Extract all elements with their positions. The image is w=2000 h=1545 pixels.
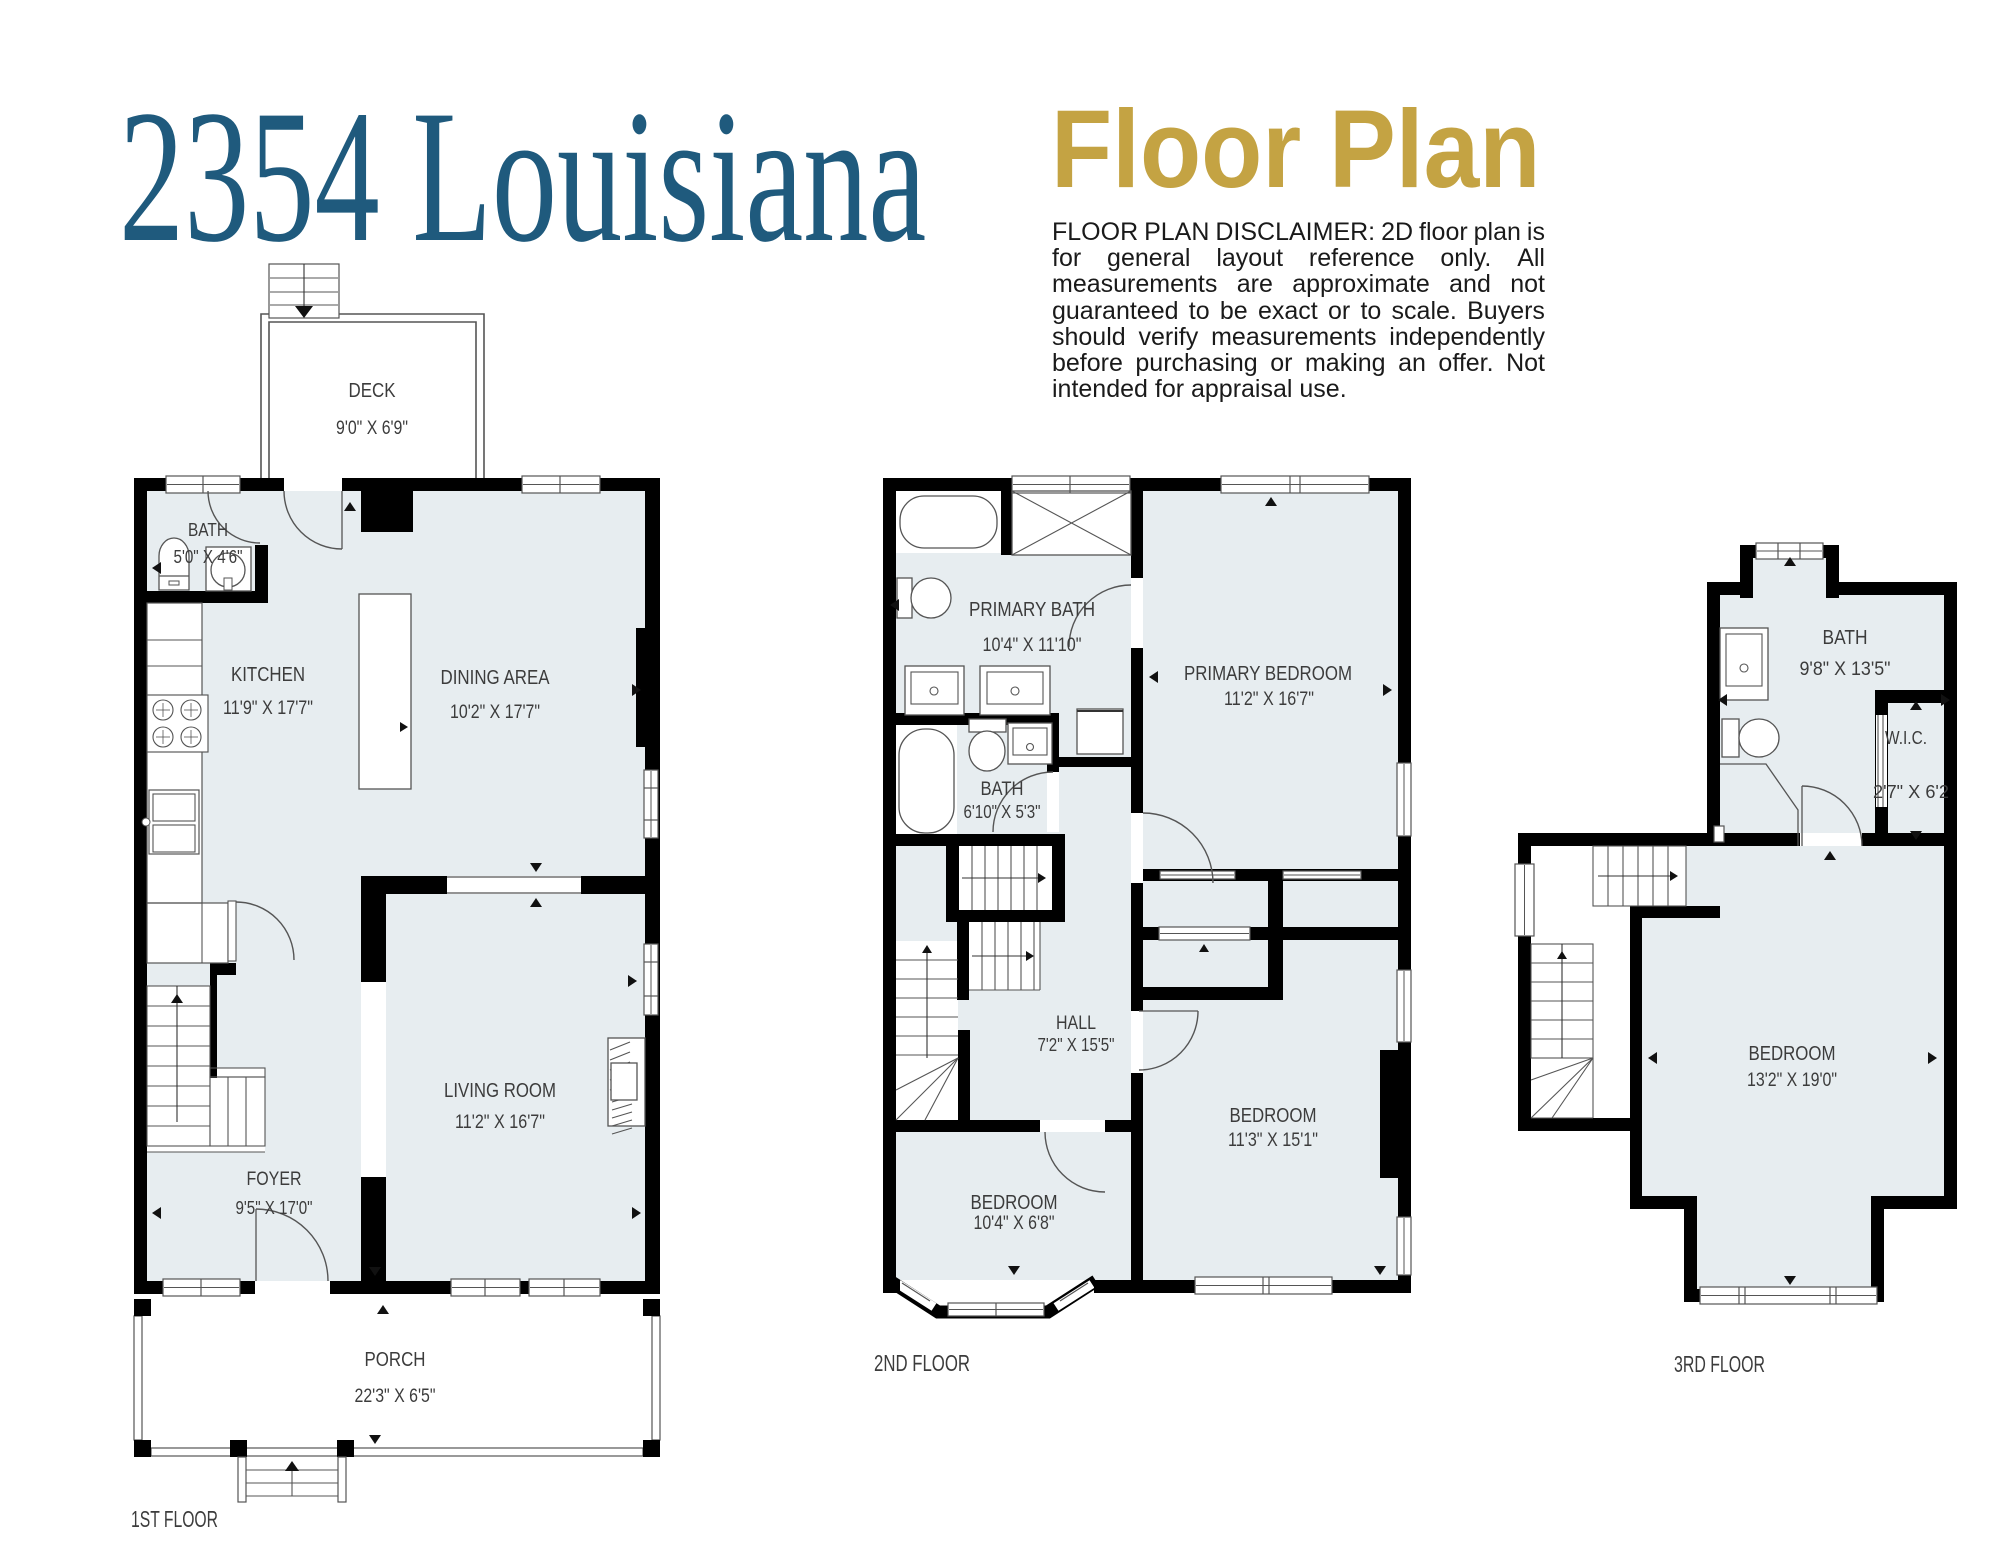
svg-text:KITCHEN: KITCHEN xyxy=(231,664,305,686)
svg-text:LIVING ROOM: LIVING ROOM xyxy=(444,1080,556,1102)
svg-text:BATH: BATH xyxy=(188,520,228,540)
svg-text:3RD FLOOR: 3RD FLOOR xyxy=(1674,1351,1765,1377)
svg-text:11'2" X 16'7": 11'2" X 16'7" xyxy=(455,1112,545,1133)
svg-text:9'8" X 13'5": 9'8" X 13'5" xyxy=(1800,659,1891,680)
svg-text:FOYER: FOYER xyxy=(247,1169,302,1190)
svg-text:W.I.C.: W.I.C. xyxy=(1885,728,1927,748)
svg-text:HALL: HALL xyxy=(1056,1013,1096,1034)
svg-text:10'4" X 6'8": 10'4" X 6'8" xyxy=(974,1213,1055,1234)
svg-text:22'3" X 6'5": 22'3" X 6'5" xyxy=(355,1386,436,1407)
svg-text:BEDROOM: BEDROOM xyxy=(1230,1105,1317,1127)
svg-text:BATH: BATH xyxy=(981,779,1024,800)
svg-text:2'7" X 6'2: 2'7" X 6'2 xyxy=(1873,782,1949,802)
svg-text:BEDROOM: BEDROOM xyxy=(1749,1043,1836,1065)
svg-text:5'0" X 4'6": 5'0" X 4'6" xyxy=(174,547,243,567)
svg-text:DINING AREA: DINING AREA xyxy=(441,667,551,689)
svg-text:9'0" X 6'9": 9'0" X 6'9" xyxy=(336,418,408,439)
svg-text:DECK: DECK xyxy=(349,380,397,402)
svg-text:PRIMARY BATH: PRIMARY BATH xyxy=(969,599,1095,621)
svg-text:13'2" X 19'0": 13'2" X 19'0" xyxy=(1747,1070,1837,1091)
svg-text:11'9" X 17'7": 11'9" X 17'7" xyxy=(223,698,313,719)
svg-text:2ND FLOOR: 2ND FLOOR xyxy=(874,1350,970,1376)
svg-text:PORCH: PORCH xyxy=(365,1349,426,1371)
svg-text:9'5" X 17'0": 9'5" X 17'0" xyxy=(236,1198,313,1218)
svg-text:PRIMARY BEDROOM: PRIMARY BEDROOM xyxy=(1184,663,1352,685)
svg-text:6'10" X 5'3": 6'10" X 5'3" xyxy=(964,802,1041,822)
svg-text:BEDROOM: BEDROOM xyxy=(971,1192,1058,1214)
svg-text:10'2" X 17'7": 10'2" X 17'7" xyxy=(450,702,540,723)
svg-text:10'4" X 11'10": 10'4" X 11'10" xyxy=(983,635,1082,656)
svg-text:1ST FLOOR: 1ST FLOOR xyxy=(131,1506,218,1532)
svg-text:11'2" X 16'7": 11'2" X 16'7" xyxy=(1224,689,1314,710)
svg-text:11'3" X 15'1": 11'3" X 15'1" xyxy=(1228,1130,1318,1151)
svg-text:BATH: BATH xyxy=(1823,627,1868,649)
svg-text:7'2" X 15'5": 7'2" X 15'5" xyxy=(1038,1035,1115,1055)
